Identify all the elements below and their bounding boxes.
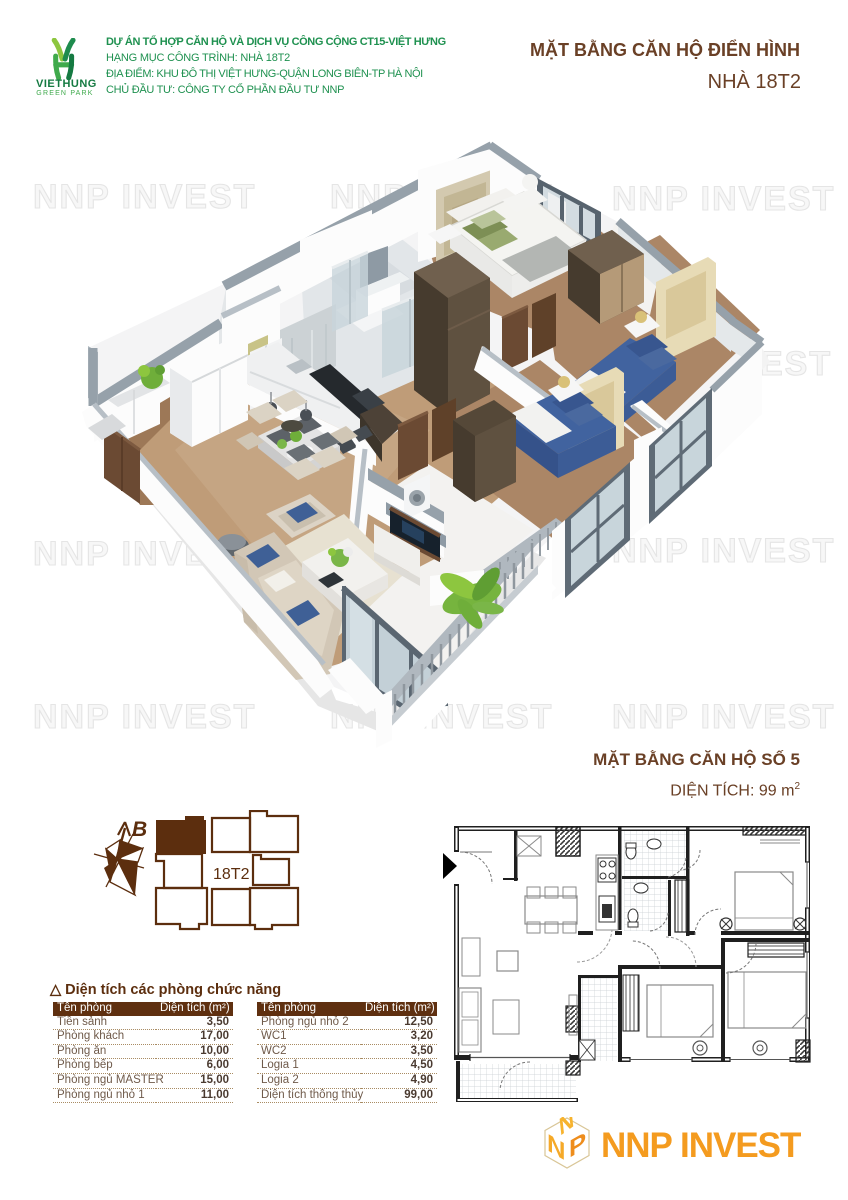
svg-text:B: B [132,818,147,841]
svg-text:18T2: 18T2 [213,866,250,883]
